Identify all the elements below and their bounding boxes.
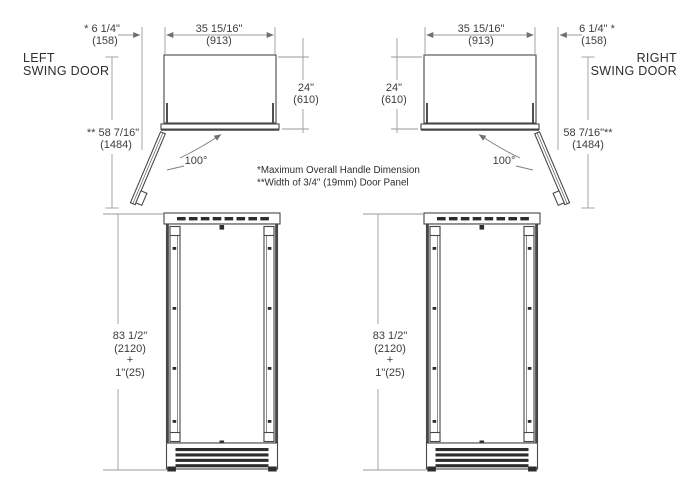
left-handle-clearance-in: * 6 1/4" [84, 23, 120, 35]
plan-view-right-unit [421, 55, 570, 207]
angle-leader-line [167, 166, 184, 170]
door-panel-open-100deg [130, 132, 171, 207]
footnote-handle-dimension: *Maximum Overall Handle Dimension [257, 165, 420, 176]
left-depth-in: 24" [298, 82, 314, 94]
left-swing-door-label-line2: SWING DOOR [23, 64, 109, 78]
dimension-lines-height-right [363, 214, 426, 470]
left-width-mm: (913) [206, 35, 232, 47]
left-foot [167, 467, 176, 472]
front-view-unit [164, 213, 280, 472]
left-width-in: 35 15/16" [196, 23, 243, 35]
right-width-in: 35 15/16" [458, 23, 505, 35]
left-open-depth-in: ** 58 7/16" [87, 127, 139, 139]
open-door-inner-line [133, 133, 163, 204]
footnote-door-panel-width: **Width of 3/4" (19mm) Door Panel [257, 178, 409, 189]
right-height-plus: + [387, 354, 393, 366]
right-foot [268, 467, 277, 472]
dimension-lines-height-left [103, 214, 166, 470]
left-height-plus: + [127, 354, 133, 366]
left-height-extra: 1"(25) [115, 367, 145, 379]
right-side-rail [264, 227, 274, 442]
right-handle-clearance-mm: (158) [581, 35, 607, 47]
cabinet-body [167, 224, 278, 443]
cabinet-top-view [164, 55, 276, 123]
front-view-right-unit [424, 213, 540, 472]
spec-diagram-page: LEFT SWING DOOR RIGHT SWING DOOR * 6 1/4… [0, 0, 700, 495]
left-side-rail [170, 227, 180, 442]
right-depth-mm: (610) [381, 94, 407, 106]
right-height-extra: 1"(25) [375, 367, 405, 379]
right-open-depth-mm: (1484) [572, 139, 604, 151]
right-width-mm: (913) [468, 35, 494, 47]
left-swing-angle: 100° [185, 155, 208, 167]
left-height-in: 83 1/2" [113, 330, 148, 342]
left-open-depth-mm: (1484) [100, 139, 132, 151]
right-height-in: 83 1/2" [373, 330, 408, 342]
left-swing-door-label-line1: LEFT [23, 51, 55, 65]
right-swing-door-label-line2: SWING DOOR [591, 64, 677, 78]
right-swing-door-label-line1: RIGHT [637, 51, 677, 65]
top-center-fastener [220, 225, 225, 230]
left-depth-mm: (610) [293, 94, 319, 106]
right-open-depth-in: 58 7/16"** [563, 127, 613, 139]
right-handle-clearance-in: 6 1/4" * [579, 23, 615, 35]
left-handle-clearance-mm: (158) [92, 35, 118, 47]
right-depth-in: 24" [386, 82, 402, 94]
right-swing-angle: 100° [493, 155, 516, 167]
door-swing-spec-drawing: LEFT SWING DOOR RIGHT SWING DOOR * 6 1/4… [0, 0, 700, 495]
